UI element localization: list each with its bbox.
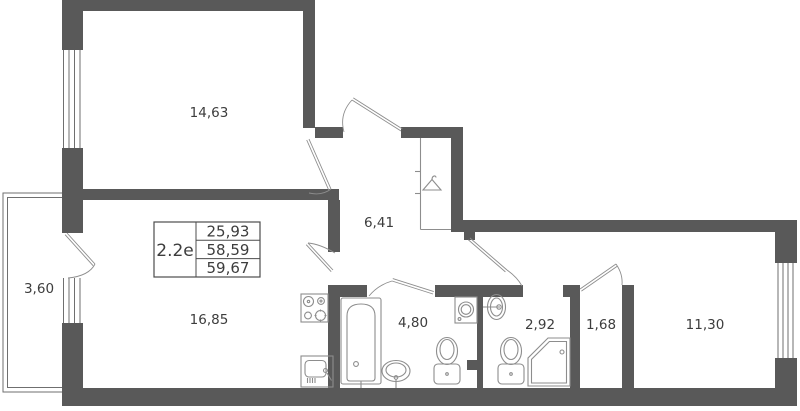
door-leaf	[65, 235, 93, 266]
wall-segment	[435, 285, 483, 297]
door-swing-arc	[343, 100, 352, 132]
room-area-label: 1,68	[586, 317, 616, 333]
floor-plan-page: 14,63 6,41 3,60 16,85 4,80 2,92 1,68 11,…	[0, 0, 800, 411]
wall-segment	[622, 285, 634, 297]
door-swing-arc	[68, 264, 95, 278]
wall-segment	[563, 285, 580, 297]
wall-segment	[467, 360, 477, 370]
wall-segment	[477, 297, 483, 388]
unit-area-value: 59,67	[207, 259, 250, 277]
door-leaf	[470, 238, 507, 270]
door-leaf	[581, 266, 617, 291]
wall-segment	[328, 200, 340, 252]
door-leaf	[307, 140, 329, 190]
room-labels: 14,63 6,41 3,60 16,85 4,80 2,92 1,68 11,…	[24, 105, 724, 333]
door-leaf	[352, 100, 401, 131]
door-leaf	[309, 139, 331, 189]
unit-area-table: 2.2е 25,93 58,59 59,67	[154, 222, 260, 277]
room-area-label: 11,30	[686, 317, 725, 333]
door-balcony	[65, 233, 95, 278]
door-leaf	[392, 281, 433, 294]
room-area-label: 14,63	[190, 105, 229, 121]
wall-segment	[62, 189, 339, 200]
wall-segment	[451, 220, 777, 232]
wall-segment	[328, 285, 340, 388]
wall-segment	[775, 220, 797, 263]
door-leaf	[580, 264, 616, 289]
window-bedroom-right	[778, 263, 793, 358]
toilet-icon	[434, 338, 460, 385]
floor-plan: 14,63 6,41 3,60 16,85 4,80 2,92 1,68 11,…	[0, 0, 800, 411]
door-toilet-room	[468, 238, 522, 286]
wall-segment	[451, 138, 463, 222]
wall-segment	[464, 232, 475, 240]
door-swing-arc	[507, 270, 522, 286]
shower-icon	[528, 338, 570, 386]
room-area-label: 16,85	[190, 312, 229, 328]
door-swing-arc	[616, 264, 622, 285]
door-leaf	[393, 279, 434, 292]
room-area-label: 6,41	[364, 215, 394, 231]
door-leaf	[67, 233, 95, 264]
wall-segment	[62, 148, 83, 193]
unit-number-label: 2.2е	[156, 241, 194, 261]
wall-segment	[303, 11, 315, 128]
fixtures	[301, 138, 570, 388]
toilet-icon	[498, 338, 524, 385]
door-storage	[580, 264, 622, 291]
door-bathroom	[369, 279, 434, 296]
wall-segment	[315, 127, 343, 138]
hanger-icon	[423, 176, 441, 190]
bath-sink-icon	[382, 361, 410, 389]
bathtub-icon	[341, 298, 381, 388]
room-area-label: 3,60	[24, 281, 54, 297]
wall-segment	[483, 285, 523, 297]
wall-segment	[340, 285, 367, 297]
wall-segment	[62, 11, 83, 50]
room-area-label: 2,92	[525, 317, 555, 333]
room-area-label: 4,80	[398, 315, 428, 331]
walls	[62, 0, 797, 406]
wall-segment	[401, 127, 463, 138]
wall-segment	[62, 200, 83, 233]
wall-segment	[622, 297, 634, 388]
wall-segment	[62, 388, 797, 406]
door-leaf	[353, 98, 402, 129]
closet	[415, 138, 451, 230]
wall-segment	[570, 297, 580, 388]
washing-machine-icon	[455, 297, 477, 323]
door-bedroom-top	[307, 139, 331, 194]
unit-area-value: 58,59	[207, 241, 250, 259]
door-swing-arc	[369, 281, 392, 296]
window-balcony	[64, 278, 81, 323]
unit-area-value: 25,93	[207, 223, 250, 241]
window-bedroom-top	[64, 50, 81, 148]
wc-sink-icon	[483, 295, 506, 320]
wall-segment	[62, 323, 83, 388]
wall-segment	[62, 0, 315, 11]
stove-icon	[301, 294, 328, 322]
door-leaf	[468, 240, 505, 272]
entrance-door	[343, 98, 403, 132]
